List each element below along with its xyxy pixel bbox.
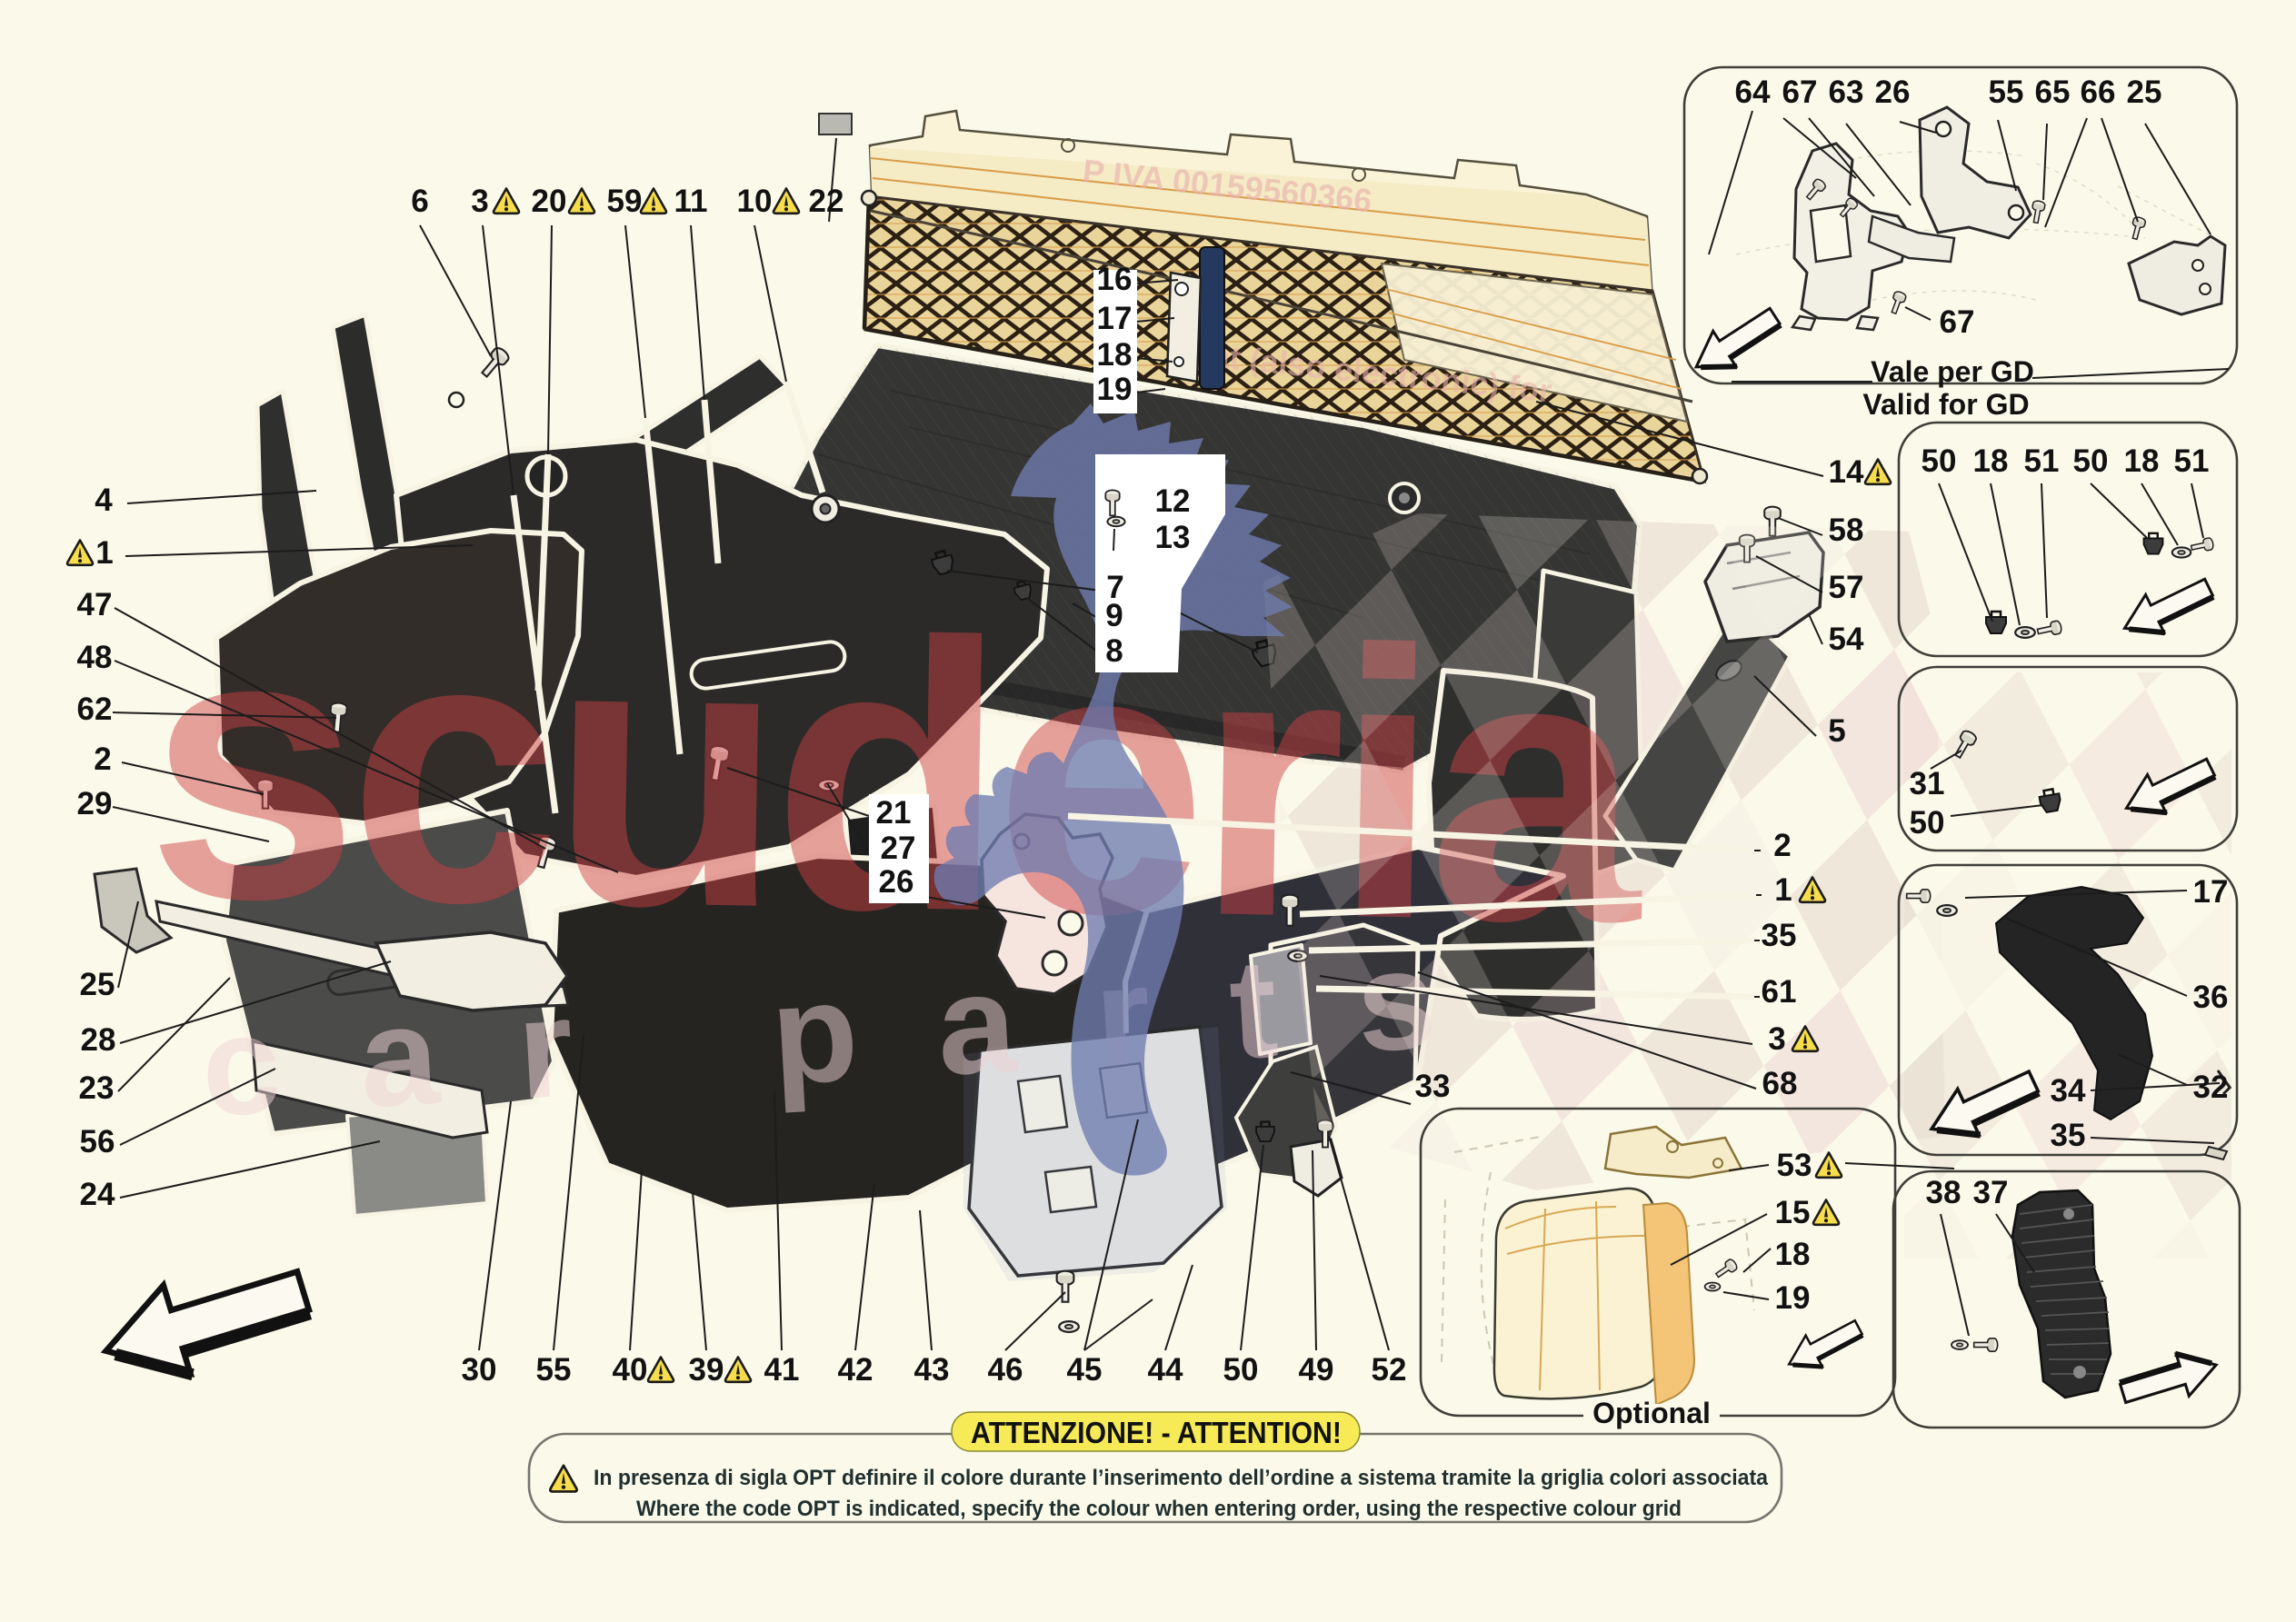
svg-text:48: 48 — [77, 640, 113, 675]
svg-text:50: 50 — [1910, 805, 1945, 841]
svg-text:31: 31 — [1910, 766, 1945, 801]
svg-text:68: 68 — [1762, 1066, 1798, 1101]
svg-text:49: 49 — [1299, 1352, 1334, 1388]
svg-text:37: 37 — [1973, 1175, 2009, 1210]
svg-text:38: 38 — [1926, 1175, 1962, 1210]
svg-text:63: 63 — [1829, 75, 1864, 110]
svg-text:39: 39 — [689, 1352, 724, 1388]
svg-text:59: 59 — [607, 184, 643, 219]
svg-text:41: 41 — [764, 1352, 800, 1388]
svg-text:40: 40 — [613, 1352, 648, 1388]
svg-text:45: 45 — [1067, 1352, 1103, 1388]
svg-text:12: 12 — [1155, 483, 1191, 519]
svg-text:51: 51 — [2174, 443, 2210, 479]
svg-text:57: 57 — [1829, 570, 1864, 605]
svg-text:52: 52 — [1372, 1352, 1407, 1388]
svg-text:21: 21 — [876, 795, 912, 831]
svg-text:26: 26 — [879, 864, 914, 900]
svg-text:58: 58 — [1829, 512, 1864, 548]
svg-text:26: 26 — [1875, 75, 1911, 110]
svg-text:14: 14 — [1829, 454, 1864, 490]
svg-text:In presenza di sigla OPT defin: In presenza di sigla OPT definire il col… — [594, 1466, 1768, 1490]
svg-text:43: 43 — [914, 1352, 950, 1388]
svg-text:Valid for GD: Valid for GD — [1862, 388, 2029, 421]
svg-text:2: 2 — [1773, 828, 1791, 863]
svg-text:18: 18 — [2124, 443, 2160, 479]
svg-text:9: 9 — [1105, 598, 1123, 633]
svg-text:44: 44 — [1148, 1352, 1183, 1388]
svg-text:62: 62 — [77, 692, 113, 727]
svg-text:36: 36 — [2193, 980, 2229, 1015]
svg-text:15: 15 — [1775, 1195, 1811, 1230]
svg-text:8: 8 — [1105, 633, 1123, 669]
svg-text:56: 56 — [80, 1124, 115, 1159]
svg-text:51: 51 — [2024, 443, 2060, 479]
svg-text:28: 28 — [81, 1022, 116, 1058]
svg-text:ATTENZIONE! - ATTENTION!: ATTENZIONE! - ATTENTION! — [971, 1416, 1342, 1449]
svg-text:1: 1 — [95, 535, 113, 571]
svg-text:Optional: Optional — [1592, 1397, 1711, 1429]
svg-text:10: 10 — [737, 184, 773, 219]
svg-text:50: 50 — [2073, 443, 2109, 479]
svg-text:33: 33 — [1415, 1069, 1451, 1104]
svg-text:42: 42 — [838, 1352, 873, 1388]
svg-text:23: 23 — [79, 1070, 115, 1106]
svg-text:11: 11 — [674, 184, 708, 219]
svg-text:27: 27 — [881, 831, 916, 866]
svg-text:67: 67 — [1940, 304, 1975, 340]
svg-text:32: 32 — [2193, 1070, 2229, 1105]
svg-text:46: 46 — [988, 1352, 1023, 1388]
svg-text:25: 25 — [80, 967, 115, 1002]
svg-text:20: 20 — [532, 184, 567, 219]
svg-text:61: 61 — [1762, 974, 1797, 1010]
svg-text:2: 2 — [94, 741, 111, 777]
svg-text:Where the code OPT is indicate: Where the code OPT is indicated, specify… — [636, 1497, 1682, 1521]
svg-text:66: 66 — [2081, 75, 2116, 110]
svg-text:17: 17 — [2193, 874, 2229, 910]
svg-text:19: 19 — [1097, 372, 1133, 407]
svg-text:5: 5 — [1828, 713, 1845, 749]
svg-text:13: 13 — [1155, 520, 1191, 555]
svg-text:50: 50 — [1223, 1352, 1259, 1388]
svg-text:30: 30 — [462, 1352, 497, 1388]
svg-text:55: 55 — [1989, 75, 2024, 110]
svg-text:29: 29 — [77, 786, 113, 821]
svg-text:65: 65 — [2035, 75, 2071, 110]
svg-text:34: 34 — [2051, 1073, 2086, 1109]
svg-text:Vale per GD: Vale per GD — [1871, 355, 2034, 388]
svg-text:67: 67 — [1782, 75, 1818, 110]
svg-text:19: 19 — [1775, 1280, 1811, 1316]
svg-text:35: 35 — [1762, 918, 1797, 953]
svg-text:24: 24 — [80, 1177, 115, 1212]
svg-text:16: 16 — [1097, 262, 1133, 297]
svg-text:55: 55 — [536, 1352, 572, 1388]
svg-text:3: 3 — [1768, 1021, 1785, 1057]
svg-text:47: 47 — [77, 587, 113, 622]
svg-text:35: 35 — [2051, 1118, 2086, 1153]
svg-text:25: 25 — [2127, 75, 2162, 110]
svg-text:50: 50 — [1922, 443, 1957, 479]
svg-text:22: 22 — [809, 184, 844, 219]
svg-text:1: 1 — [1774, 872, 1792, 908]
svg-text:64: 64 — [1735, 75, 1771, 110]
svg-text:6: 6 — [411, 184, 428, 219]
svg-text:3: 3 — [471, 184, 488, 219]
svg-text:18: 18 — [1775, 1237, 1811, 1272]
svg-text:4: 4 — [95, 483, 113, 518]
svg-text:54: 54 — [1829, 622, 1864, 657]
svg-text:17: 17 — [1097, 301, 1133, 336]
svg-text:18: 18 — [1973, 443, 2009, 479]
svg-text:53: 53 — [1777, 1148, 1812, 1183]
svg-text:18: 18 — [1097, 337, 1133, 373]
